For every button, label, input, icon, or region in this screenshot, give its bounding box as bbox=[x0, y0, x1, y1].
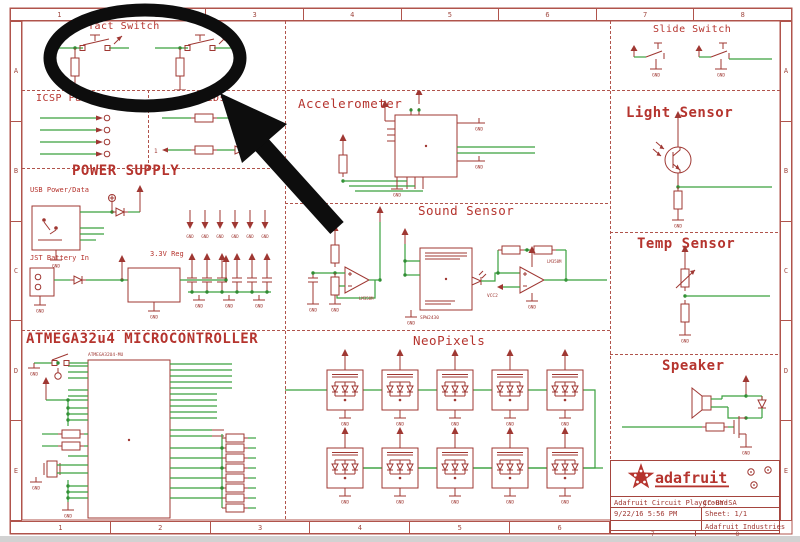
slide-switch-schematic bbox=[610, 21, 780, 90]
light-sensor-schematic bbox=[610, 90, 780, 232]
neopixel-symbol bbox=[492, 349, 528, 428]
neopixel-symbol bbox=[547, 349, 583, 428]
neopixel-symbol bbox=[492, 427, 528, 506]
schematic-page: GND 1 bbox=[0, 0, 800, 542]
title-block: adafruit Adafruit Circuit Playground CC-… bbox=[610, 460, 780, 534]
page-edge-strip bbox=[0, 536, 800, 542]
title-block-date-row: 9/22/16 5:56 PM Sheet: 1/1 bbox=[611, 507, 779, 520]
icsp-pad-rows bbox=[40, 115, 110, 157]
screw-mark-icon bbox=[748, 469, 754, 475]
gnd-flag-bank: GND GND GND GND GND GND bbox=[186, 210, 269, 239]
tact-switch-symbol bbox=[155, 35, 234, 90]
led-row: 1 bbox=[154, 140, 252, 155]
sound-sensor-schematic: LM358M SPW2430 LM358M VCC2 bbox=[285, 203, 610, 330]
microcontroller-schematic: ATMEGA32U4-MU bbox=[22, 330, 285, 520]
sheet-label: Sheet: 1/1 bbox=[701, 508, 779, 520]
power-supply-schematic: GND GND GND GND GND GND bbox=[22, 168, 285, 330]
mcu-crystal-circuit bbox=[30, 461, 88, 492]
neopixel-symbol bbox=[437, 427, 473, 506]
adafruit-logo: adafruit bbox=[611, 461, 779, 494]
svg-text:GND: GND bbox=[201, 234, 209, 239]
speaker-driver-circuit bbox=[622, 375, 766, 457]
leds-schematic: 1 bbox=[148, 90, 285, 168]
neopixel-symbol bbox=[547, 427, 583, 506]
battery-regulator-wires bbox=[54, 255, 230, 306]
mcu-pullup-resistor-bank bbox=[170, 434, 256, 512]
neopixel-symbol bbox=[382, 349, 418, 428]
title-block-company-row: Adafruit Industries bbox=[611, 520, 779, 530]
sound-sensor-left-amp: LM358M bbox=[307, 206, 384, 314]
mcu-chip-label: ATMEGA32U4-MU bbox=[88, 352, 124, 358]
svg-text:GND: GND bbox=[186, 234, 194, 239]
mcu-right-pins bbox=[170, 364, 232, 436]
speaker-schematic bbox=[610, 354, 780, 460]
tact-switch-schematic bbox=[22, 21, 285, 90]
icsp-pads-schematic bbox=[22, 90, 148, 168]
neopixels-schematic bbox=[285, 330, 610, 520]
capacitor-bank bbox=[187, 253, 272, 310]
svg-text:GND: GND bbox=[246, 234, 254, 239]
neopixel-symbol bbox=[437, 349, 473, 428]
screw-mark-icon bbox=[765, 467, 771, 473]
usb-connector-symbol bbox=[32, 206, 80, 255]
svg-text:GND: GND bbox=[231, 234, 239, 239]
mcu-chip-symbol: ATMEGA32U4-MU bbox=[88, 352, 170, 518]
temp-sensor-schematic bbox=[610, 232, 780, 354]
svg-text:GND: GND bbox=[216, 234, 224, 239]
thermistor-divider bbox=[676, 245, 770, 345]
adafruit-logo-text: adafruit bbox=[655, 469, 727, 487]
svg-text:GND: GND bbox=[261, 234, 269, 239]
neopixel-symbol bbox=[327, 349, 363, 428]
screw-mark-icon bbox=[751, 482, 757, 488]
accelerometer-right-pins bbox=[457, 118, 535, 171]
vcc2-label: VCC2 bbox=[487, 293, 498, 299]
slide-switch-symbol bbox=[631, 43, 665, 79]
phototransistor-symbol bbox=[653, 111, 691, 173]
date-label: 9/22/16 5:56 PM bbox=[614, 510, 677, 518]
license-label: CC-BY-SA bbox=[703, 499, 737, 507]
light-sensor-divider bbox=[672, 173, 772, 230]
mic-part-label: SPW2430 bbox=[420, 315, 439, 321]
opamp-part-label: LM358M bbox=[359, 296, 374, 301]
title-block-project-row: Adafruit Circuit Playground CC-BY-SA bbox=[611, 496, 779, 507]
slide-switch-symbol bbox=[696, 43, 730, 79]
sound-sensor-right-amp: LM358M VCC2 bbox=[481, 246, 607, 311]
jst-connector-symbol bbox=[30, 268, 54, 300]
speaker-symbol bbox=[692, 388, 746, 418]
neopixel-symbol bbox=[382, 427, 418, 506]
company-label: Adafruit Industries bbox=[701, 521, 779, 530]
accelerometer-left-pins bbox=[382, 100, 396, 141]
sound-sensor-mic-symbol: SPW2430 bbox=[402, 228, 487, 327]
accelerometer-chip-symbol bbox=[395, 91, 457, 177]
led-pin-label: 1 bbox=[154, 148, 158, 155]
mcu-input-resistors bbox=[42, 430, 88, 450]
neopixel-symbol bbox=[327, 427, 363, 506]
accelerometer-schematic bbox=[285, 91, 610, 203]
opamp-part-label: LM358M bbox=[547, 259, 562, 264]
adafruit-star-icon bbox=[628, 463, 655, 488]
led-row bbox=[162, 108, 252, 122]
mcu-bottom-bus bbox=[62, 480, 88, 520]
tact-switch-symbol bbox=[50, 35, 129, 90]
usb-power-wires bbox=[80, 185, 144, 240]
